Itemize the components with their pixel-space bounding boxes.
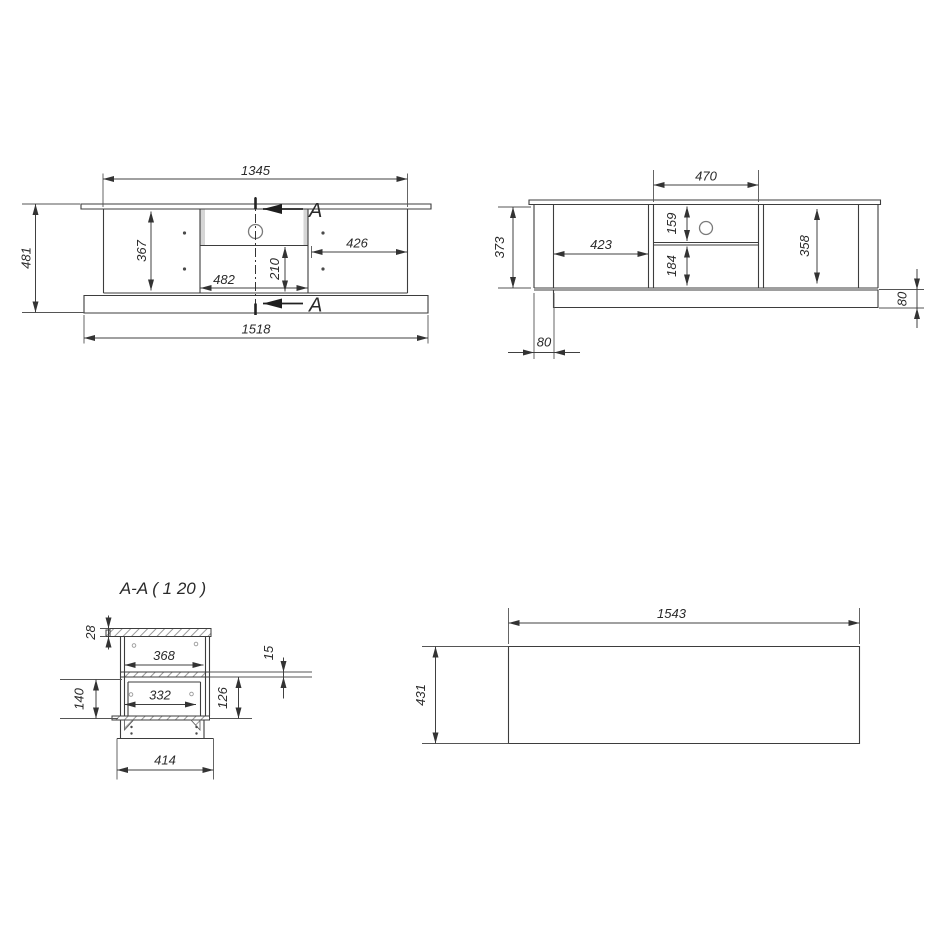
- section-view: A-A ( 1 20 ) 28 368 15 140 332 126: [60, 579, 312, 780]
- dim-text-niche-lower-height: 184: [664, 255, 679, 277]
- section-view-title: A-A ( 1 20 ): [119, 579, 206, 598]
- screw-hole-lower-right: [190, 692, 194, 696]
- front-extension-lines: [22, 174, 428, 344]
- section-shelf: [121, 672, 210, 677]
- dim-text-right-niche-height: 358: [797, 234, 812, 256]
- left-door-pin-top: [183, 231, 186, 234]
- dim-text-lower-opening: 126: [215, 686, 230, 708]
- dim-text-plinth-height: 80: [895, 291, 910, 306]
- front-view: A A 1345 481 367 482 210 426 1518: [19, 163, 432, 344]
- left-door-pin-bottom: [183, 267, 186, 270]
- dim-text-plinth-depth: 414: [154, 753, 176, 768]
- plinth-dot-3: [195, 726, 197, 728]
- screw-hole-upper-right: [194, 642, 198, 646]
- dim-text-body-width: 1345: [241, 163, 271, 178]
- dim-text-top-thickness: 28: [83, 625, 98, 641]
- dim-text-upper-depth: 368: [153, 648, 175, 663]
- dim-text-top-width: 1543: [657, 606, 687, 621]
- dim-text-drawer-opening: 140: [72, 687, 87, 709]
- dim-text-door-height: 367: [134, 239, 149, 261]
- dim-text-right-door-width: 426: [346, 236, 368, 251]
- dim-text-niche-width: 470: [695, 169, 717, 184]
- top-view: 1543 431: [413, 606, 860, 744]
- dim-text-base-width: 1518: [242, 322, 272, 337]
- right-door-pin-top: [321, 231, 324, 234]
- dim-text-left-niche-width: 423: [590, 237, 612, 252]
- plinth-corner-block-right: [191, 720, 200, 730]
- dim-text-plinth-inset: 80: [537, 335, 552, 350]
- rear-view: 470 159 184 423 358 373 80 80: [492, 169, 924, 360]
- cable-hole-rear: [700, 222, 713, 235]
- screw-hole-upper-left: [132, 644, 136, 648]
- dim-text-overall-height: 481: [19, 247, 34, 269]
- section-bottom-panel: [112, 716, 210, 720]
- screw-hole-lower-left: [129, 693, 133, 697]
- dim-text-rear-body-height: 373: [492, 236, 507, 258]
- section-letter-top: A: [308, 200, 322, 222]
- dim-text-top-depth: 431: [413, 684, 428, 706]
- dim-text-niche-upper-height: 159: [664, 213, 679, 235]
- rear-extension-lines: [498, 170, 924, 359]
- plinth-dot-2: [130, 732, 132, 734]
- section-top-panel: [110, 629, 211, 637]
- dim-text-drawer-height: 210: [267, 257, 282, 280]
- top-view-extension-lines: [422, 608, 860, 744]
- section-letter-bottom: A: [308, 295, 322, 317]
- technical-drawing-canvas: A A 1345 481 367 482 210 426 1518 470 15…: [0, 0, 940, 940]
- dim-text-drawer-depth: 332: [149, 688, 171, 703]
- front-right-partition-strip: [304, 209, 309, 246]
- top-panel-outline: [509, 647, 860, 744]
- front-left-partition-strip: [201, 209, 206, 246]
- drawing-svg: A A 1345 481 367 482 210 426 1518 470 15…: [0, 0, 940, 940]
- plinth-dot-1: [130, 726, 132, 728]
- plinth-dot-4: [195, 732, 197, 734]
- plinth-corner-block-left: [125, 720, 134, 730]
- right-door-pin-bottom: [321, 267, 324, 270]
- dim-text-shelf-thickness: 15: [261, 645, 276, 660]
- dim-text-drawer-width: 482: [213, 272, 235, 287]
